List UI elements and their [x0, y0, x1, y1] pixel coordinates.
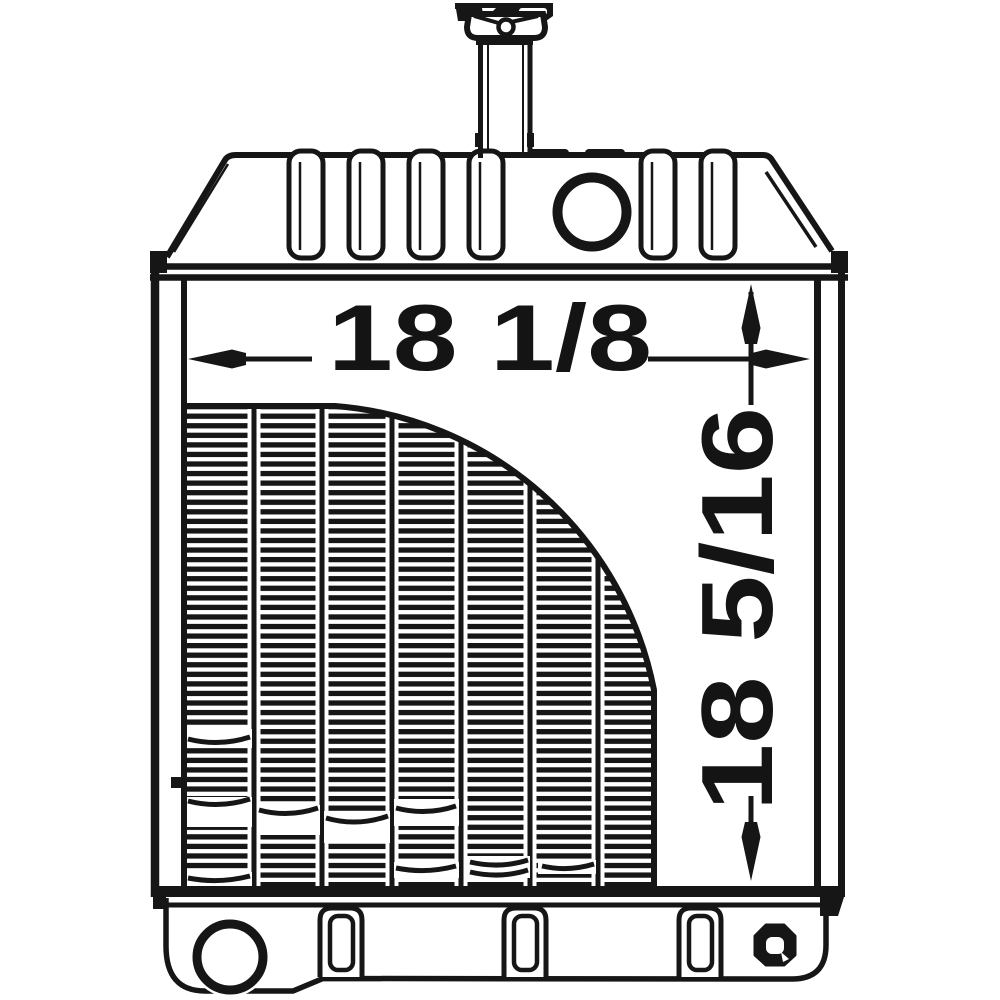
svg-text:18 1/8: 18 1/8	[328, 286, 652, 391]
svg-text:18 5/16: 18 5/16	[681, 407, 794, 811]
